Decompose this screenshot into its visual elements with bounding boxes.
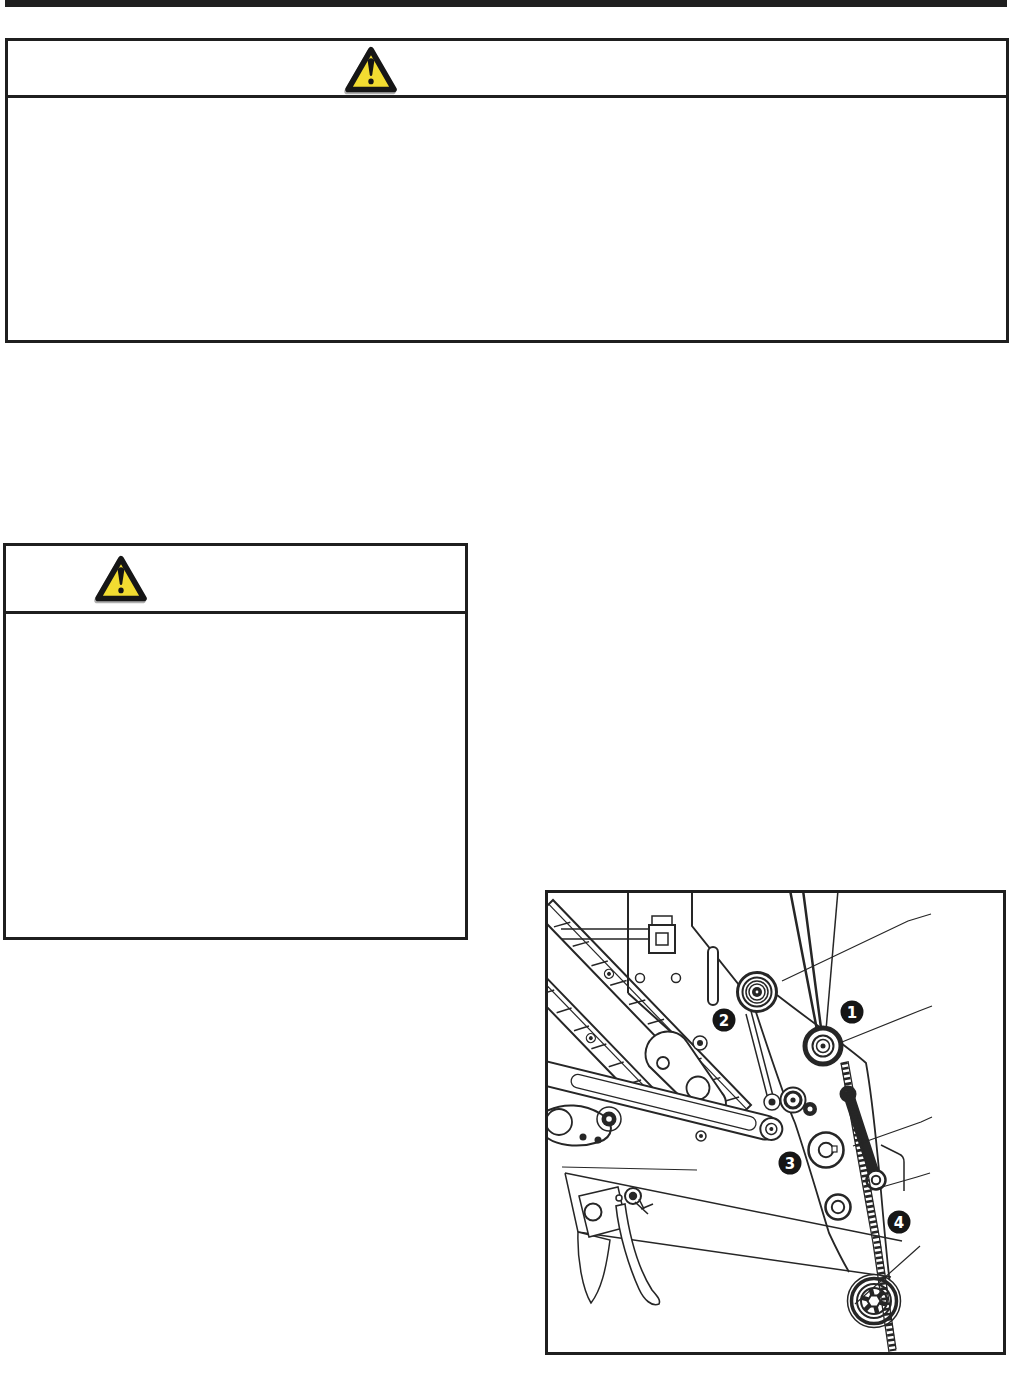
manual-page: 1 2 3 4 [0, 0, 1012, 1391]
callout-number: 3 [785, 1155, 795, 1173]
warning-box-small-header [6, 546, 465, 614]
callout-number: 2 [719, 1012, 729, 1030]
drive-pulley [848, 1275, 901, 1328]
callout-badge-4: 4 [888, 1211, 911, 1234]
diagram-line-art: 1 2 3 4 [545, 890, 1006, 1355]
deck-frame [562, 1167, 902, 1305]
idler-bearing [805, 1028, 841, 1064]
callout-badge-2: 2 [713, 1009, 736, 1032]
pivot-washer [809, 1133, 844, 1168]
bolt-hole [672, 974, 681, 983]
spring-pulley [738, 973, 777, 1012]
lower-bolt [826, 1195, 851, 1220]
deck-flap [578, 1232, 610, 1303]
belt-linkage-diagram: 1 2 3 4 [545, 890, 1006, 1355]
warning-box-small [3, 543, 468, 940]
exclamation-dot [368, 79, 373, 85]
warning-triangle-icon [345, 43, 397, 97]
leader-1 [782, 914, 931, 981]
bolt-hole [636, 974, 645, 983]
warning-box-large-header [8, 41, 1006, 98]
callout-number: 4 [894, 1214, 904, 1232]
callout-badge-1: 1 [841, 1001, 864, 1024]
page-top-rule [5, 0, 1007, 7]
warning-triangle-icon [95, 551, 147, 607]
bracket-hole [585, 1204, 602, 1221]
latch-handle [616, 1204, 660, 1305]
pivot-hardware [781, 1088, 818, 1117]
left-pivot-bracket [545, 1105, 621, 1145]
callout-number: 1 [847, 1004, 857, 1022]
exclamation-dot [118, 588, 123, 594]
warning-box-large [5, 38, 1009, 343]
adjustment-slot [708, 947, 718, 1005]
bracket-tab [652, 916, 672, 925]
callout-badge-3: 3 [779, 1152, 802, 1175]
